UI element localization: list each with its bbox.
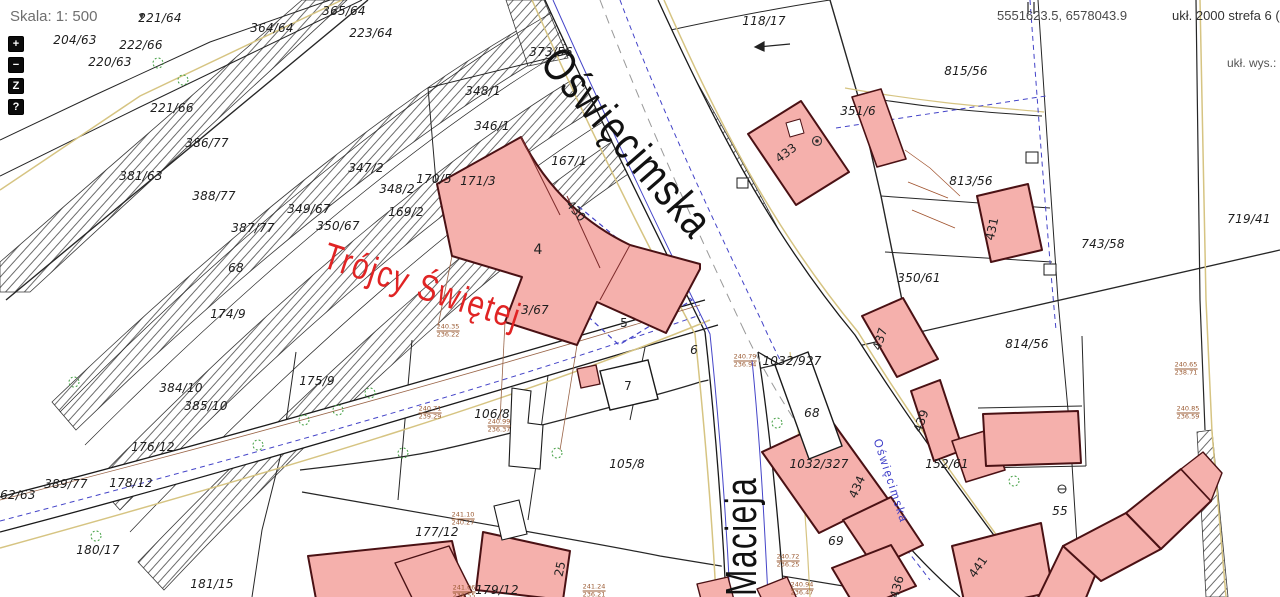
crs-height-label: ukł. wys.: B xyxy=(1227,56,1280,70)
scale-value: 1: 500 xyxy=(56,8,98,25)
building-7-outline xyxy=(600,360,658,410)
map-toolbar: + − Z ? xyxy=(8,36,24,115)
building-small-square xyxy=(577,365,600,388)
cursor-coordinates: 5551623.5, 6578043.9 xyxy=(997,8,1127,23)
building-25-annex xyxy=(494,500,527,540)
scale-control[interactable]: Skala:1: 500 xyxy=(10,8,97,25)
scale-dropdown-icon[interactable]: ▼ xyxy=(137,11,146,21)
building-351-6 xyxy=(852,89,906,167)
zoom-extent-button[interactable]: Z xyxy=(8,78,24,94)
building-106-8-outline xyxy=(509,388,543,469)
building-433 xyxy=(748,101,849,205)
building-25 xyxy=(476,532,570,597)
crs-label: ukł. 2000 strefa 6 (18 xyxy=(1172,8,1280,23)
building-small-1 xyxy=(697,577,734,597)
map-canvas[interactable] xyxy=(0,0,1280,597)
building-814-56 xyxy=(983,411,1081,466)
help-button[interactable]: ? xyxy=(8,99,24,115)
scale-label: Skala: xyxy=(10,8,52,25)
zoom-out-button[interactable]: − xyxy=(8,57,24,73)
zoom-in-button[interactable]: + xyxy=(8,36,24,52)
building-431 xyxy=(977,184,1042,262)
direction-arrow-icon xyxy=(755,42,790,51)
map-viewport: OświęcimskaMaciejaTrójcy ŚwiętejOświęcim… xyxy=(0,0,1280,597)
